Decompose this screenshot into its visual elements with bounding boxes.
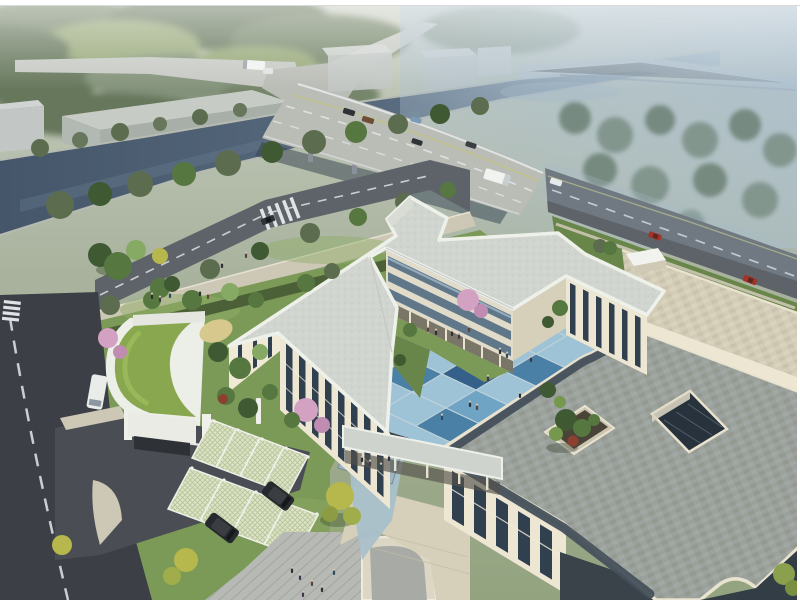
frame-top	[0, 0, 800, 5]
top-mist	[0, 0, 800, 90]
architectural-rendering	[0, 0, 800, 600]
rendering-canvas	[0, 0, 800, 600]
